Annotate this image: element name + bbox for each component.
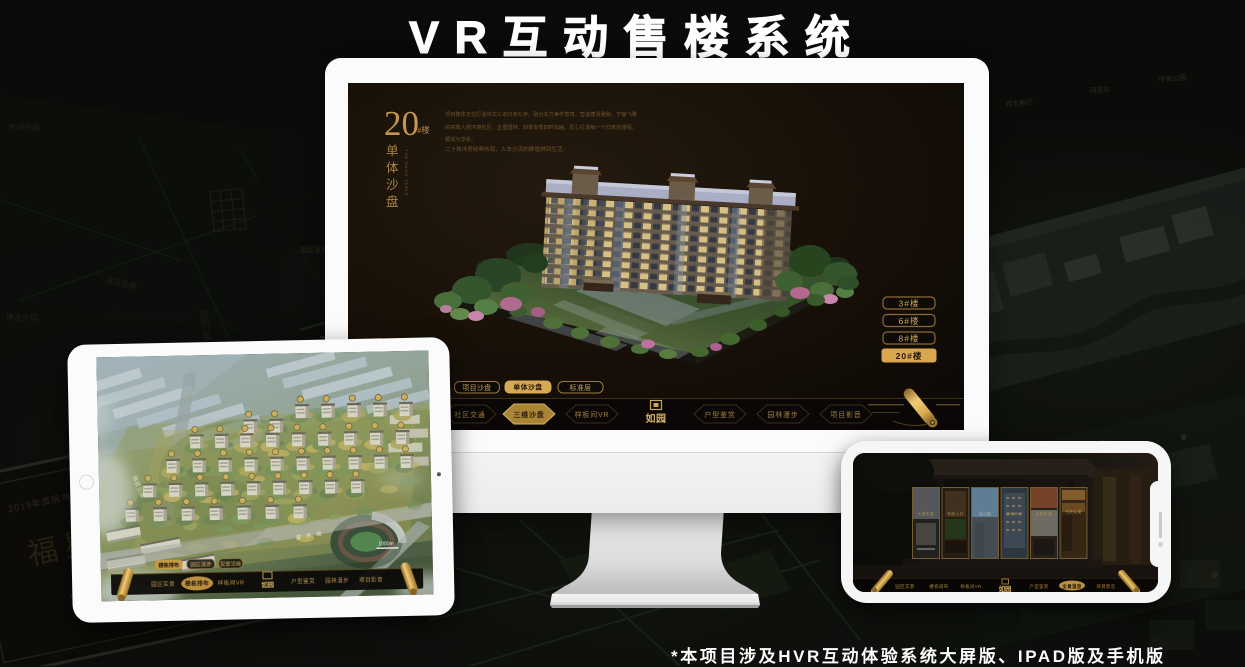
svg-text:城市展厅: 城市展厅 xyxy=(1005,98,1034,109)
svg-text:楼栋排布: 楼栋排布 xyxy=(929,583,948,590)
svg-text:单体沙盘: 单体沙盘 xyxy=(513,383,542,392)
svg-text:20#楼: 20#楼 xyxy=(896,351,923,361)
svg-text:#楼: #楼 xyxy=(417,125,430,135)
svg-text:20: 20 xyxy=(384,104,419,143)
svg-text:如园: 如园 xyxy=(999,584,1012,592)
svg-text:户型鉴赏: 户型鉴赏 xyxy=(704,410,735,419)
svg-text:南湖中路: 南湖中路 xyxy=(8,122,40,132)
svg-text:6#楼: 6#楼 xyxy=(899,316,920,326)
svg-text:户型鉴赏: 户型鉴赏 xyxy=(1029,583,1048,590)
svg-text:园区实景: 园区实景 xyxy=(895,583,914,590)
svg-text:样板间VR: 样板间VR xyxy=(575,410,610,419)
svg-text:如园: 如园 xyxy=(646,412,667,425)
svg-text:项目影音: 项目影音 xyxy=(1096,583,1115,590)
svg-text:样板间VR: 样板间VR xyxy=(960,583,981,590)
svg-text:二十栋洋房经典布局，人车分流的静谧林间生活。: 二十栋洋房经典布局，人车分流的静谧林间生活。 xyxy=(445,145,568,153)
svg-text:3#楼: 3#楼 xyxy=(899,299,920,309)
svg-text:都成为享受。: 都成为享受。 xyxy=(445,135,476,143)
svg-text:的高端人居环境社区，五重园林，四季有景四时如画，匠心打造每一: 的高端人居环境社区，五重园林，四季有景四时如画，匠心打造每一个归家的旅程， xyxy=(445,123,637,131)
svg-text:社区交通: 社区交通 xyxy=(454,410,485,419)
svg-text:1000m: 1000m xyxy=(378,541,393,547)
svg-text:中央公园: 中央公园 xyxy=(1158,73,1187,84)
svg-text:项目影音: 项目影音 xyxy=(830,410,861,419)
svg-text:标准层: 标准层 xyxy=(570,383,592,392)
svg-text:THE SAND TABLE: THE SAND TABLE xyxy=(404,149,409,197)
svg-text:8#楼: 8#楼 xyxy=(899,334,920,344)
svg-text:沙: 沙 xyxy=(386,178,399,192)
svg-text:如园: 如园 xyxy=(261,580,274,589)
svg-text:盘: 盘 xyxy=(386,194,399,209)
svg-text:三维沙盘: 三维沙盘 xyxy=(513,410,544,419)
svg-text:建发大道: 建发大道 xyxy=(6,312,38,322)
svg-text:园林漫步: 园林漫步 xyxy=(767,410,798,419)
svg-text:单: 单 xyxy=(386,144,399,158)
svg-text:项目整体定位打造中式三进归家礼序，融合东方美学意境，营造尊贵: 项目整体定位打造中式三进归家礼序，融合东方美学意境，营造尊贵雅致、宁静飞雅 xyxy=(445,110,637,118)
svg-text:全景漫游: 全景漫游 xyxy=(1061,583,1081,590)
svg-text:体: 体 xyxy=(386,161,399,175)
svg-text:鸿玺台: 鸿玺台 xyxy=(1089,84,1111,94)
svg-text:项目沙盘: 项目沙盘 xyxy=(462,383,491,392)
